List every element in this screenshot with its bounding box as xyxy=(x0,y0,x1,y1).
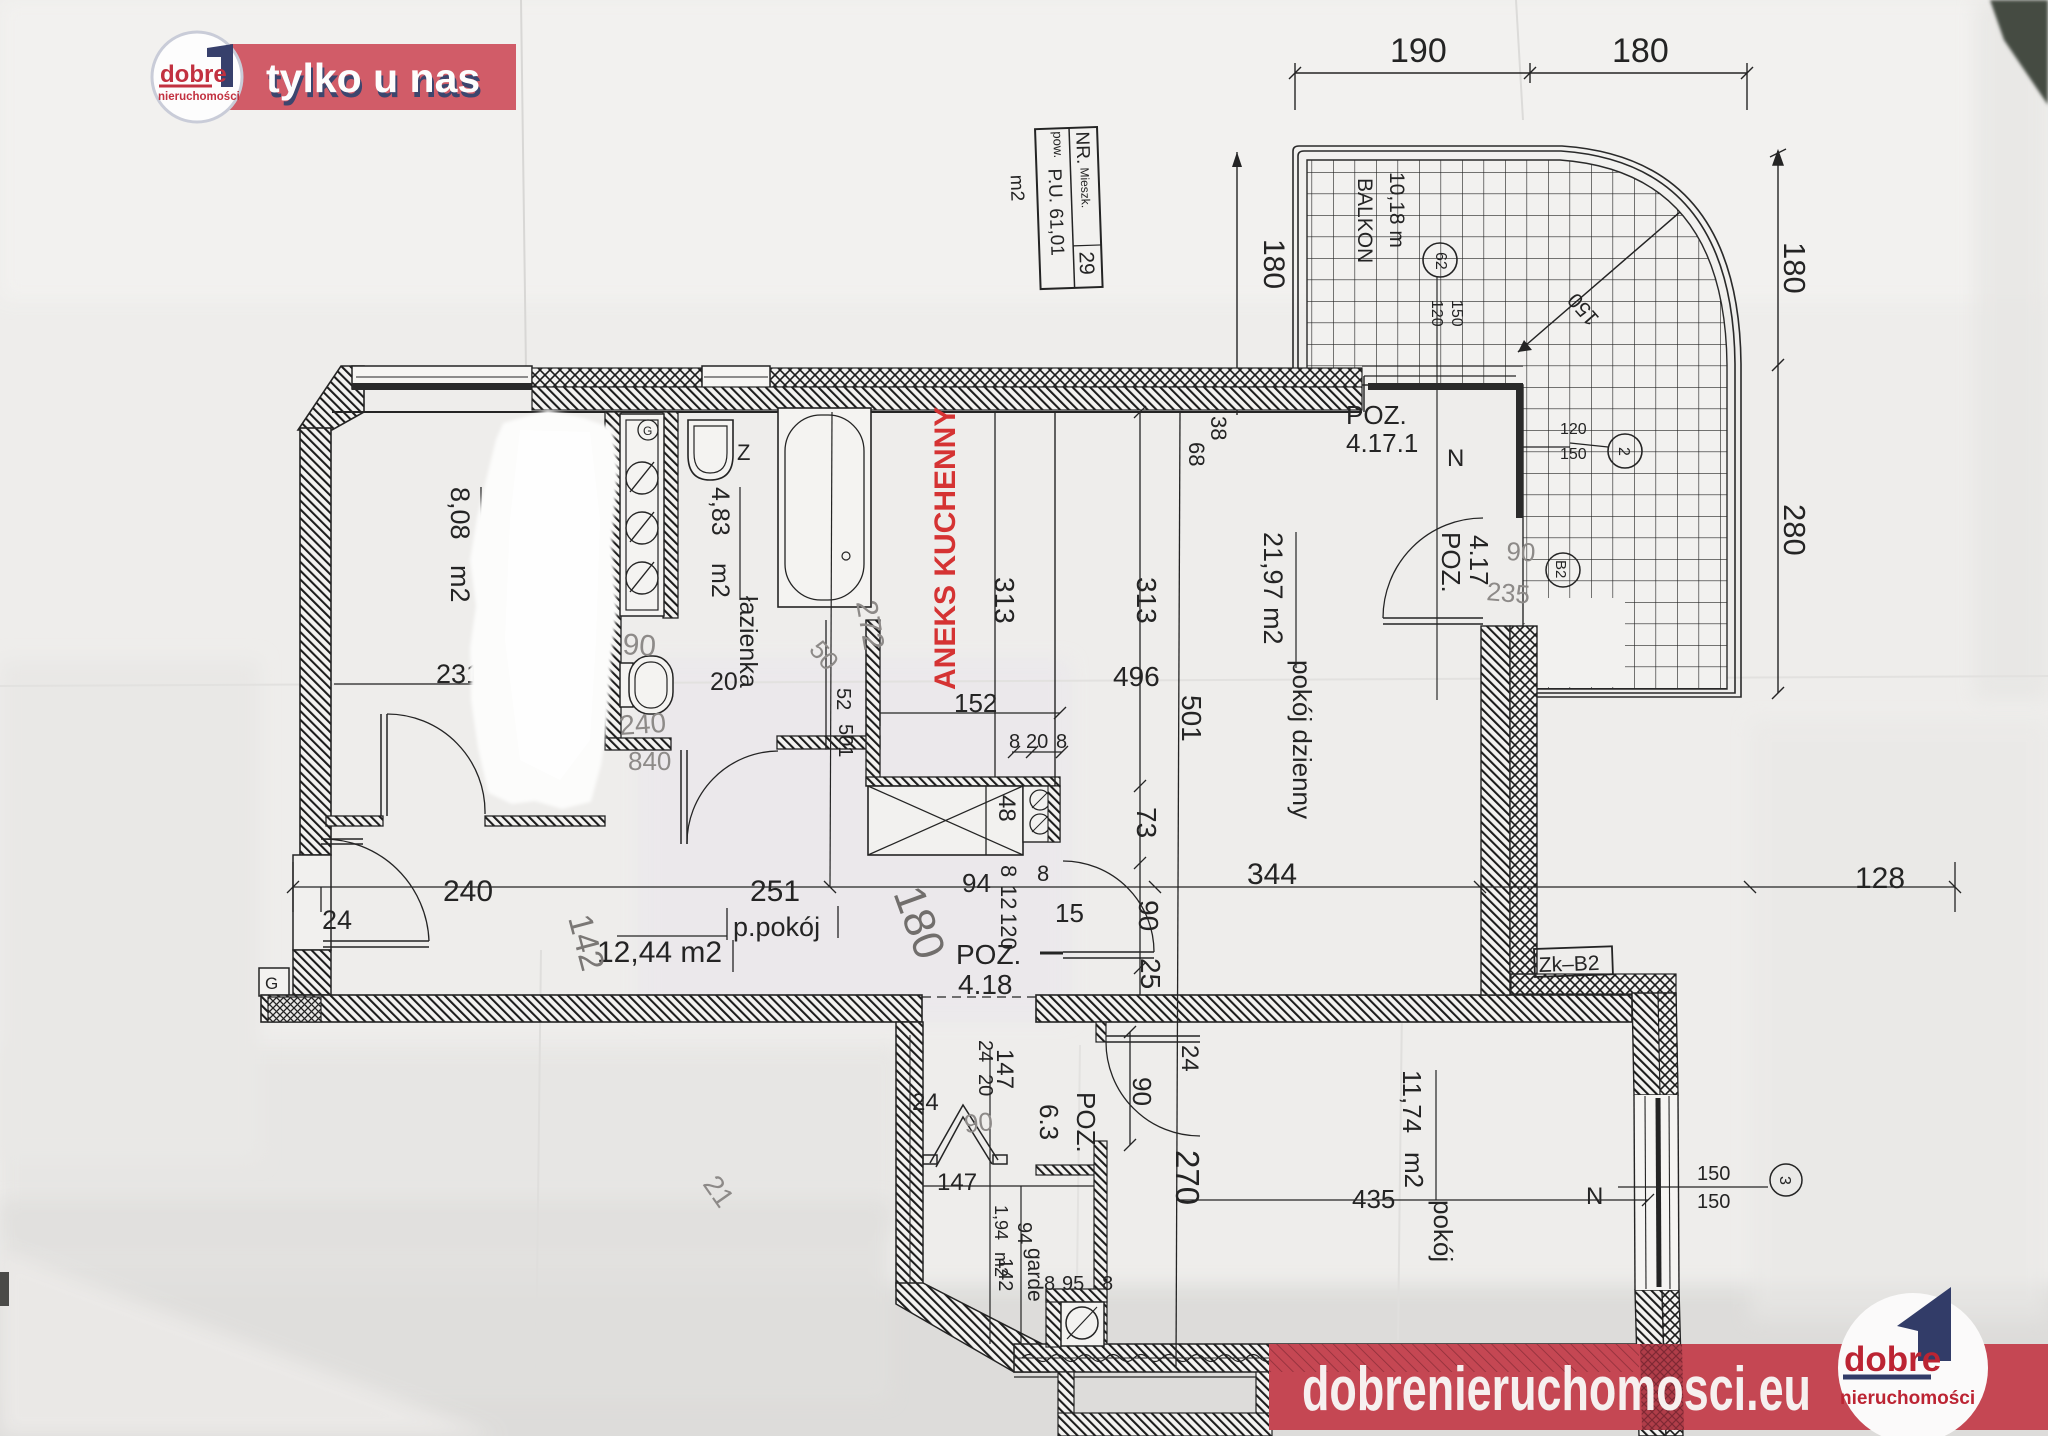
svg-text:150: 150 xyxy=(1697,1163,1730,1185)
svg-text:garde: garde xyxy=(1023,1248,1046,1302)
svg-text:12,44 m2: 12,44 m2 xyxy=(597,936,722,969)
svg-text:90: 90 xyxy=(1127,1077,1157,1106)
svg-text:tylko u nas: tylko u nas xyxy=(266,55,480,101)
svg-text:95: 95 xyxy=(1062,1273,1084,1295)
svg-text:90: 90 xyxy=(962,1106,994,1139)
svg-text:m2: m2 xyxy=(1399,1152,1429,1188)
svg-text:pow.: pow. xyxy=(1050,131,1066,158)
svg-text:235: 235 xyxy=(1485,576,1531,610)
svg-text:G: G xyxy=(265,974,278,993)
svg-text:38: 38 xyxy=(1206,416,1231,440)
svg-text:73: 73 xyxy=(1131,807,1162,838)
svg-text:pokój dzienny: pokój dzienny xyxy=(1287,660,1317,819)
svg-text:11,74: 11,74 xyxy=(1397,1070,1427,1133)
svg-text:15: 15 xyxy=(1055,898,1084,928)
svg-text:m2: m2 xyxy=(1006,174,1028,201)
svg-text:344: 344 xyxy=(1247,858,1297,891)
svg-text:POZ.: POZ. xyxy=(1071,1092,1101,1153)
svg-text:POZ.: POZ. xyxy=(1346,400,1407,430)
svg-text:94: 94 xyxy=(962,868,991,898)
svg-text:280: 280 xyxy=(1777,504,1812,556)
svg-text:N: N xyxy=(1447,445,1464,472)
svg-text:120: 120 xyxy=(1428,300,1445,327)
svg-text:B2: B2 xyxy=(1552,560,1569,578)
svg-text:20: 20 xyxy=(1026,731,1048,753)
svg-text:152: 152 xyxy=(954,688,997,718)
svg-text:150: 150 xyxy=(1448,300,1465,327)
svg-text:6.3: 6.3 xyxy=(1034,1104,1064,1140)
svg-text:8,08: 8,08 xyxy=(445,487,475,540)
svg-text:180: 180 xyxy=(1257,239,1290,289)
svg-text:150: 150 xyxy=(1560,446,1587,463)
svg-text:8: 8 xyxy=(1102,1273,1113,1295)
svg-text:24: 24 xyxy=(1176,1045,1203,1072)
svg-text:dobre: dobre xyxy=(160,61,227,88)
svg-text:4.18: 4.18 xyxy=(958,969,1013,1000)
svg-text:20: 20 xyxy=(974,1074,996,1096)
svg-text:Z: Z xyxy=(737,440,750,465)
svg-text:68: 68 xyxy=(1184,442,1209,466)
svg-text:dobrenieruchomosci.eu: dobrenieruchomosci.eu xyxy=(1302,1355,1811,1424)
svg-text:8: 8 xyxy=(1044,1273,1055,1295)
svg-text:190: 190 xyxy=(1390,32,1447,70)
svg-text:120: 120 xyxy=(996,913,1021,950)
svg-text:94: 94 xyxy=(1013,1222,1035,1244)
svg-text:2: 2 xyxy=(1615,447,1632,456)
svg-text:62: 62 xyxy=(1432,252,1449,270)
svg-text:8: 8 xyxy=(1009,731,1020,753)
svg-text:1,94: 1,94 xyxy=(991,1205,1011,1240)
svg-text:840: 840 xyxy=(628,746,671,776)
svg-text:90: 90 xyxy=(1506,536,1536,567)
svg-text:P.U. 61,01: P.U. 61,01 xyxy=(1043,168,1067,256)
svg-text:435: 435 xyxy=(1352,1184,1395,1214)
svg-text:N: N xyxy=(1586,1183,1603,1210)
svg-text:25: 25 xyxy=(1135,958,1166,989)
svg-text:NR.: NR. xyxy=(1071,131,1093,164)
svg-text:180: 180 xyxy=(1612,32,1669,70)
svg-text:12: 12 xyxy=(996,885,1021,909)
svg-text:90: 90 xyxy=(622,628,658,663)
svg-text:ANEKS KUCHENNY: ANEKS KUCHENNY xyxy=(929,407,962,690)
svg-text:501: 501 xyxy=(1176,695,1207,742)
svg-text:pokój: pokój xyxy=(1428,1200,1458,1262)
svg-text:150: 150 xyxy=(1697,1191,1730,1213)
svg-text:p.pokój: p.pokój xyxy=(733,912,820,942)
svg-text:24: 24 xyxy=(322,905,352,935)
svg-text:240: 240 xyxy=(443,875,493,908)
svg-text:m2: m2 xyxy=(706,563,734,598)
svg-text:4,83: 4,83 xyxy=(706,487,734,536)
svg-text:10,18 m: 10,18 m xyxy=(1385,172,1408,248)
svg-text:128: 128 xyxy=(1855,862,1905,895)
svg-text:8: 8 xyxy=(1037,861,1049,886)
svg-text:52: 52 xyxy=(832,688,854,710)
svg-text:147: 147 xyxy=(937,1169,977,1196)
svg-text:24: 24 xyxy=(912,1089,939,1116)
svg-text:BALKON: BALKON xyxy=(1353,178,1376,263)
svg-text:łazienka: łazienka xyxy=(734,596,762,688)
svg-text:142: 142 xyxy=(994,1258,1016,1291)
svg-text:90: 90 xyxy=(1133,900,1164,931)
svg-text:8: 8 xyxy=(996,865,1021,877)
svg-text:dobre: dobre xyxy=(1844,1340,1941,1379)
svg-text:nieruchomości: nieruchomości xyxy=(158,91,240,103)
svg-text:313: 313 xyxy=(1131,577,1162,624)
svg-text:POZ.: POZ. xyxy=(1436,532,1466,593)
svg-text:G: G xyxy=(643,424,652,438)
svg-text:m2: m2 xyxy=(445,565,475,603)
svg-text:240: 240 xyxy=(618,707,667,741)
svg-text:313: 313 xyxy=(989,577,1020,624)
svg-text:120: 120 xyxy=(1560,421,1587,438)
svg-text:21,97 m2: 21,97 m2 xyxy=(1258,532,1288,645)
svg-text:8: 8 xyxy=(1056,731,1067,753)
svg-text:nieruchomości: nieruchomości xyxy=(1840,1388,1975,1409)
svg-text:496: 496 xyxy=(1113,661,1160,692)
svg-text:180: 180 xyxy=(1777,242,1812,294)
svg-text:48: 48 xyxy=(993,795,1020,822)
svg-text:501: 501 xyxy=(834,724,856,757)
svg-text:251: 251 xyxy=(750,875,800,908)
svg-text:Zk–B2: Zk–B2 xyxy=(1538,952,1599,977)
svg-text:4.17.1: 4.17.1 xyxy=(1346,428,1418,458)
svg-text:270: 270 xyxy=(1169,1150,1206,1205)
svg-text:29: 29 xyxy=(1074,251,1098,275)
svg-text:3: 3 xyxy=(1776,1176,1793,1185)
svg-text:Mieszk.: Mieszk. xyxy=(1077,167,1092,208)
svg-text:20: 20 xyxy=(710,668,738,696)
svg-text:24: 24 xyxy=(974,1040,996,1062)
